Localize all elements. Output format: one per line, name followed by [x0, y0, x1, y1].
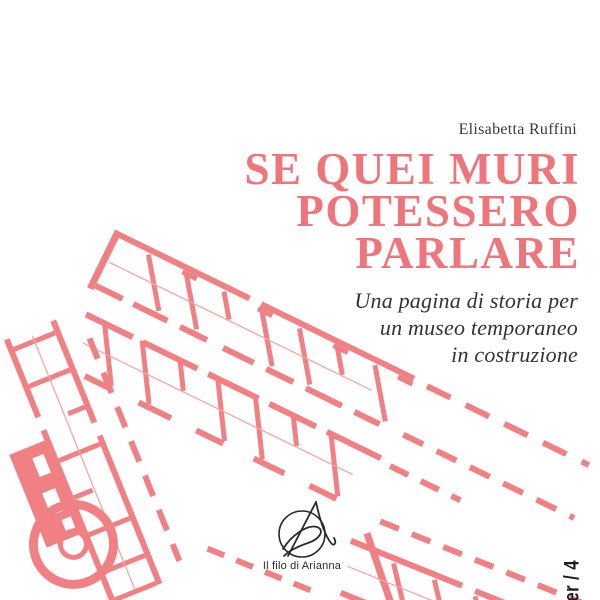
title-line-1: SE QUEI MURI: [244, 148, 580, 190]
book-subtitle: Una pagina di storia per un museo tempor…: [244, 287, 578, 368]
logo-circle-icon: [279, 511, 325, 557]
title-line-3: PARLARE: [244, 232, 580, 274]
series-label: Dossier / 4: [561, 560, 585, 600]
book-title: SE QUEI MURI POTESSERO PARLARE: [244, 148, 580, 274]
arianna-a-monogram-icon: [283, 502, 335, 556]
title-line-2: POTESSERO: [244, 190, 580, 232]
publisher-name: Il filo di Arianna: [237, 560, 367, 572]
author-name: Elisabetta Ruffini: [244, 121, 577, 139]
subtitle-line-3: in costruzione: [244, 341, 578, 368]
subtitle-line-2: un museo temporaneo: [244, 314, 578, 341]
cover-text-block: Elisabetta Ruffini SE QUEI MURI POTESSER…: [244, 121, 580, 368]
publisher-logo: [279, 502, 335, 557]
subtitle-line-1: Una pagina di storia per: [244, 287, 578, 314]
book-cover: Elisabetta Ruffini SE QUEI MURI POTESSER…: [0, 0, 600, 600]
